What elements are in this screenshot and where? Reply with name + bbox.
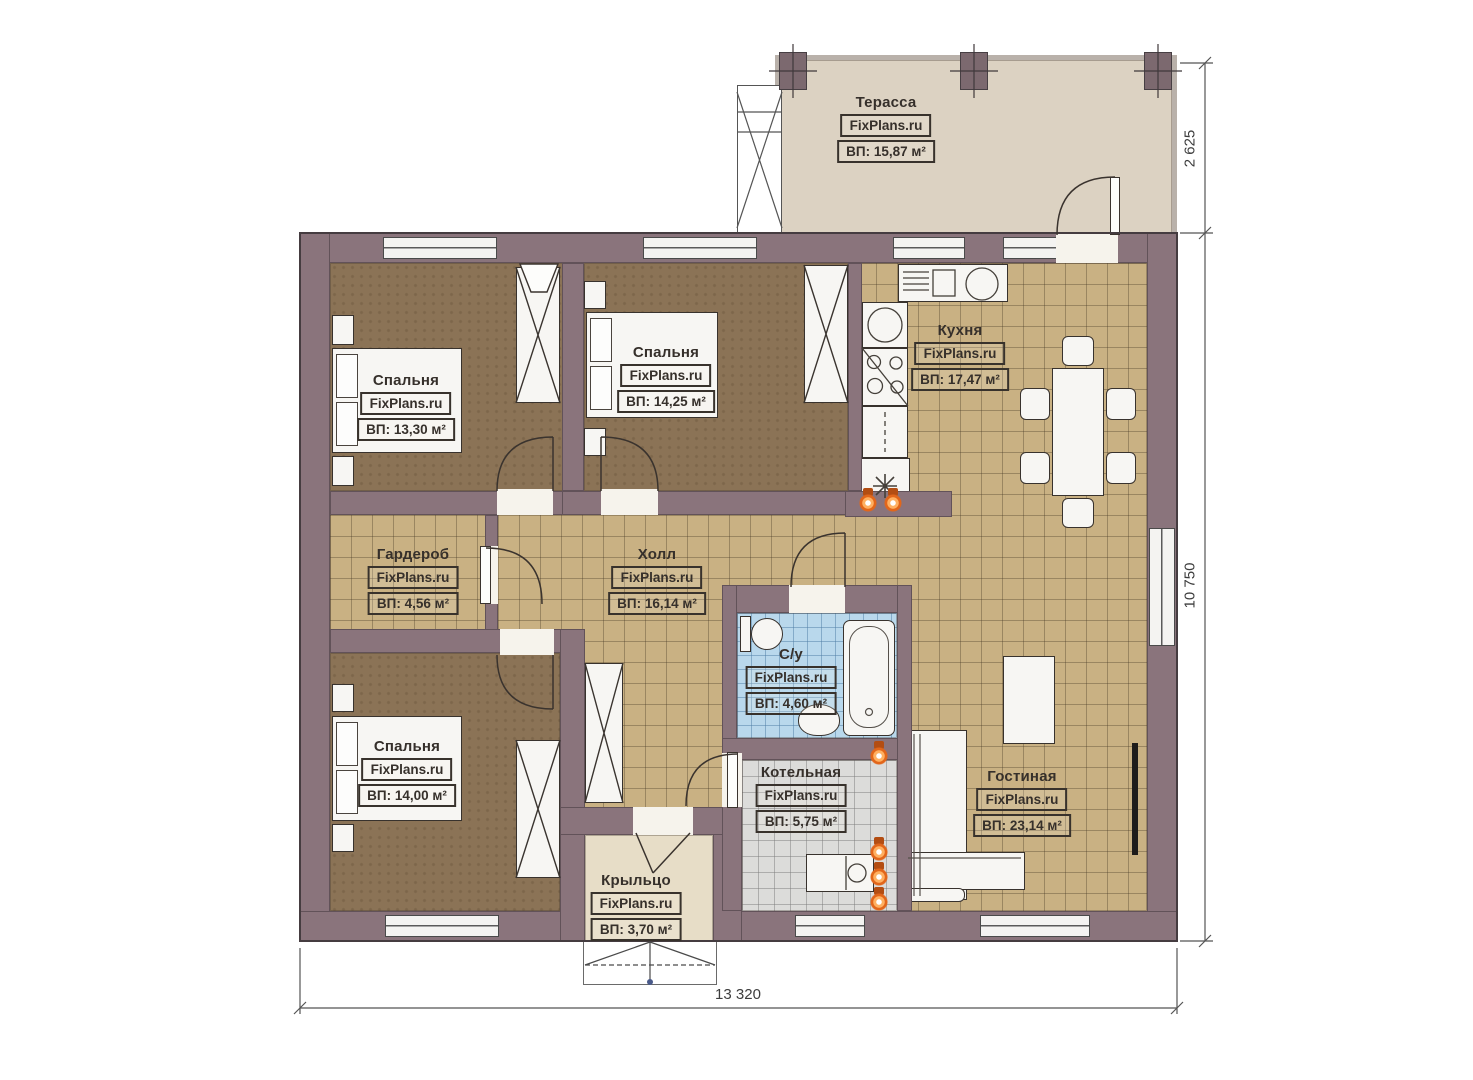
room-name: Терасса bbox=[856, 94, 917, 111]
door-leaf-boiler bbox=[727, 752, 738, 808]
floor-plan: Терасса FixPlans.ru ВП: 15,87 м² Спальня… bbox=[0, 0, 1473, 1080]
terrace-pillar bbox=[1144, 52, 1172, 90]
room-name: Кухня bbox=[938, 322, 983, 339]
room-name: Гардероб bbox=[377, 546, 450, 563]
dimension-house-width: 13 320 bbox=[698, 986, 778, 1003]
wardrobe-closet bbox=[804, 265, 848, 403]
room-label-bedroom-tl: Спальня FixPlans.ru ВП: 13,30 м² bbox=[357, 372, 455, 441]
terrace-door-opening bbox=[1056, 233, 1118, 263]
door-leaf-wardrobe bbox=[480, 546, 491, 604]
room-area: ВП: 5,75 м² bbox=[756, 810, 846, 833]
wall-bedroom-bl-east bbox=[560, 629, 585, 941]
radiator-icon bbox=[869, 740, 890, 766]
window-kitchen-terrace bbox=[893, 237, 965, 259]
watermark-box: FixPlans.ru bbox=[977, 788, 1068, 811]
wardrobe-closet bbox=[516, 740, 560, 878]
room-name: Котельная bbox=[761, 764, 841, 781]
room-label-porch: Крыльцо FixPlans.ru ВП: 3,70 м² bbox=[591, 872, 682, 941]
radiator-icon bbox=[869, 861, 890, 887]
room-label-hall: Холл FixPlans.ru ВП: 16,14 м² bbox=[608, 546, 706, 615]
window-boiler bbox=[795, 915, 865, 937]
room-area: ВП: 3,70 м² bbox=[591, 918, 681, 941]
room-area: ВП: 14,00 м² bbox=[358, 784, 456, 807]
bathtub-inner bbox=[849, 626, 889, 728]
door-opening-bedroom-tl bbox=[497, 489, 553, 515]
sofa-armrest bbox=[903, 888, 965, 902]
room-label-bedroom-tm: Спальня FixPlans.ru ВП: 14,25 м² bbox=[617, 344, 715, 413]
dishwasher bbox=[862, 406, 908, 458]
pillow bbox=[336, 354, 358, 398]
window-bedroom-bl bbox=[385, 915, 499, 937]
nightstand bbox=[584, 281, 606, 309]
door-opening-bedroom-tm bbox=[601, 489, 658, 515]
watermark-box: FixPlans.ru bbox=[621, 364, 712, 387]
pillow bbox=[336, 770, 358, 814]
room-area: ВП: 23,14 м² bbox=[973, 814, 1071, 837]
door-leaf-terrace bbox=[1110, 177, 1120, 235]
room-name: Спальня bbox=[373, 372, 439, 389]
room-area: ВП: 17,47 м² bbox=[911, 368, 1009, 391]
chair bbox=[1020, 452, 1050, 484]
room-area: ВП: 4,60 м² bbox=[746, 692, 836, 715]
sofa-chaise bbox=[905, 852, 1025, 890]
watermark-box: FixPlans.ru bbox=[368, 566, 459, 589]
watermark-box: FixPlans.ru bbox=[841, 114, 932, 137]
hall-closet bbox=[585, 663, 623, 803]
room-label-bathroom: С/у FixPlans.ru ВП: 4,60 м² bbox=[746, 646, 837, 715]
watermark-box: FixPlans.ru bbox=[362, 758, 453, 781]
watermark-box: FixPlans.ru bbox=[591, 892, 682, 915]
wall-bathroom-west bbox=[722, 585, 737, 755]
radiator-icon bbox=[858, 487, 879, 513]
dimension-terrace-depth: 2 625 bbox=[1182, 119, 1199, 179]
window bbox=[643, 237, 757, 259]
radiator-icon bbox=[869, 836, 890, 862]
nightstand bbox=[332, 456, 354, 486]
room-name: Холл bbox=[638, 546, 676, 563]
room-name: Спальня bbox=[374, 738, 440, 755]
room-area: ВП: 14,25 м² bbox=[617, 390, 715, 413]
room-name: Крыльцо bbox=[601, 872, 671, 889]
room-label-kitchen: Кухня FixPlans.ru ВП: 17,47 м² bbox=[911, 322, 1009, 391]
door-opening-bathroom bbox=[789, 585, 845, 613]
wall-living-west bbox=[897, 585, 912, 911]
terrace-pillar bbox=[960, 52, 988, 90]
pillow bbox=[336, 722, 358, 766]
room-label-living: Гостиная FixPlans.ru ВП: 23,14 м² bbox=[973, 768, 1071, 837]
pillow bbox=[336, 402, 358, 446]
window bbox=[383, 237, 497, 259]
watermark-box: FixPlans.ru bbox=[746, 666, 837, 689]
chair bbox=[1106, 388, 1136, 420]
room-label-wardrobe: Гардероб FixPlans.ru ВП: 4,56 м² bbox=[368, 546, 459, 615]
watermark-box: FixPlans.ru bbox=[915, 342, 1006, 365]
watermark-box: FixPlans.ru bbox=[361, 392, 452, 415]
wall-bedrooms-divider bbox=[562, 263, 584, 491]
room-label-terrace: Терасса FixPlans.ru ВП: 15,87 м² bbox=[837, 94, 935, 163]
nightstand bbox=[584, 428, 606, 456]
pillow bbox=[590, 366, 612, 410]
wall-bottom-right bbox=[713, 911, 1177, 941]
dimension-house-depth: 10 750 bbox=[1182, 551, 1199, 621]
wardrobe-closet bbox=[516, 267, 560, 403]
kitchen-counter bbox=[898, 264, 1008, 302]
chair bbox=[1062, 336, 1094, 366]
chair bbox=[1020, 388, 1050, 420]
wall-left bbox=[300, 233, 330, 941]
nightstand bbox=[332, 684, 354, 712]
kitchen-sink-unit bbox=[862, 302, 908, 348]
terrace-pillar bbox=[779, 52, 807, 90]
room-area: ВП: 15,87 м² bbox=[837, 140, 935, 163]
watermark-box: FixPlans.ru bbox=[612, 566, 703, 589]
room-name: Спальня bbox=[633, 344, 699, 361]
chair bbox=[1062, 498, 1094, 528]
radiator-icon bbox=[869, 886, 890, 912]
stove bbox=[862, 348, 908, 406]
chair bbox=[1106, 452, 1136, 484]
room-name: Гостиная bbox=[987, 768, 1056, 785]
window-living-south bbox=[980, 915, 1090, 937]
nightstand bbox=[332, 315, 354, 345]
door-opening-bedroom-bl bbox=[500, 629, 554, 655]
radiator-icon bbox=[883, 487, 904, 513]
living-cabinet bbox=[1003, 656, 1055, 744]
boiler-unit bbox=[806, 854, 874, 892]
pillow bbox=[590, 318, 612, 362]
room-area: ВП: 4,56 м² bbox=[368, 592, 458, 615]
watermark-box: FixPlans.ru bbox=[756, 784, 847, 807]
room-name: С/у bbox=[779, 646, 803, 663]
wall-kitchen-west bbox=[848, 263, 862, 491]
dining-table bbox=[1052, 368, 1104, 496]
terrace-stairs bbox=[737, 85, 782, 233]
room-area: ВП: 13,30 м² bbox=[357, 418, 455, 441]
room-label-boiler: Котельная FixPlans.ru ВП: 5,75 м² bbox=[756, 764, 847, 833]
window-living-terrace bbox=[1003, 237, 1059, 259]
window-living-east bbox=[1149, 528, 1175, 646]
porch-steps bbox=[583, 941, 717, 985]
nightstand bbox=[332, 824, 354, 852]
room-label-bedroom-bl: Спальня FixPlans.ru ВП: 14,00 м² bbox=[358, 738, 456, 807]
tv bbox=[1132, 743, 1138, 855]
front-door-opening bbox=[633, 807, 693, 835]
room-area: ВП: 16,14 м² bbox=[608, 592, 706, 615]
